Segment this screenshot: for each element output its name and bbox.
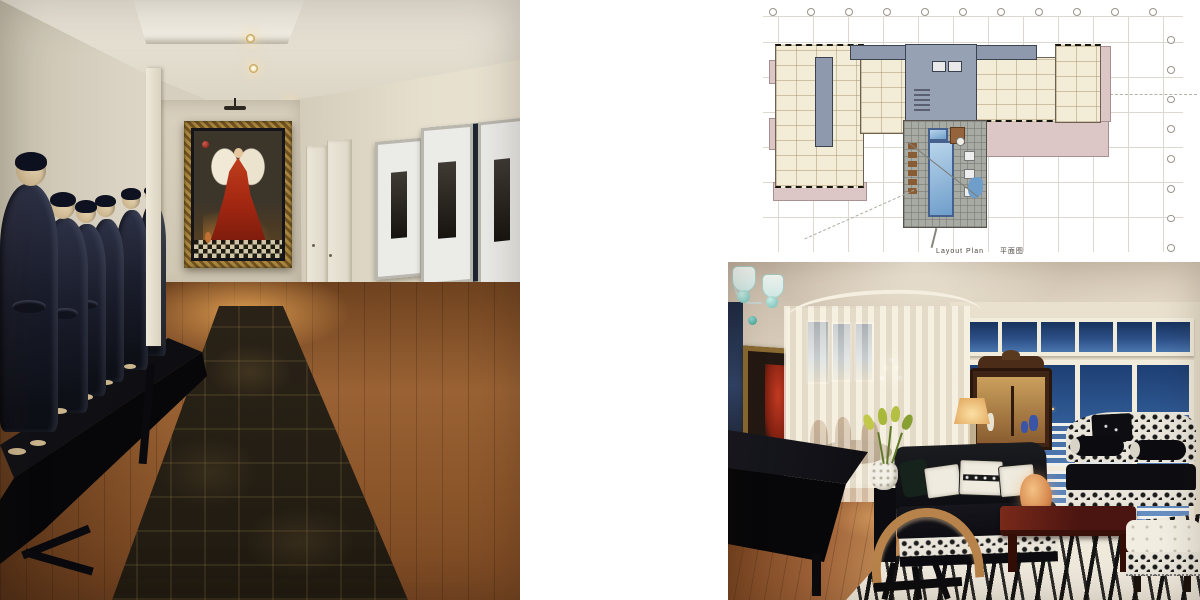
statue-head (51, 194, 75, 219)
ottoman-damask-band (1126, 552, 1200, 576)
plan-east-rooms (975, 57, 1063, 122)
bolster-pillow (1132, 440, 1186, 460)
framed-print-1 (375, 138, 423, 280)
statue-hair (15, 152, 47, 171)
grid-bubble (845, 8, 853, 16)
door-knob (312, 244, 315, 247)
blue-vase (1029, 415, 1038, 431)
grid-bubble (883, 8, 891, 16)
checkered-floor (194, 240, 282, 258)
plan-stair (914, 87, 930, 111)
piano-leg (812, 554, 821, 596)
framed-print-3 (478, 117, 520, 292)
grid-bubble (997, 8, 1005, 16)
grid-bubble (807, 8, 815, 16)
plan-spa (928, 128, 948, 141)
plan-mid-rooms (860, 57, 909, 134)
door-casing (146, 68, 161, 346)
settee-damask-front (1066, 490, 1196, 506)
statue-feet (30, 440, 46, 446)
grid-bubbles-right (1167, 36, 1175, 252)
statue-hair (121, 188, 140, 200)
bolster-pillow (1072, 436, 1124, 456)
plan-table-round (956, 137, 965, 146)
grid-bubble (1167, 185, 1175, 193)
plan-pool (928, 141, 954, 217)
picture-light (224, 106, 246, 110)
statue-feet (8, 448, 26, 455)
glass-ball (766, 296, 778, 308)
plan-seat (964, 151, 975, 161)
glass-cup (762, 274, 784, 298)
glass-ball (737, 290, 750, 303)
plan-northeast-rooms (1055, 44, 1101, 123)
statue-hair (95, 195, 116, 207)
cabinet-mullion (1011, 386, 1014, 436)
recessed-downlight (249, 64, 258, 73)
framed-print-artwork (438, 162, 456, 240)
plan-elevator (948, 61, 962, 72)
statue-head (76, 202, 96, 223)
plan-courtyard (903, 120, 987, 228)
grid-bubbles-top (769, 8, 1169, 16)
grid-bubble (959, 8, 967, 16)
statue-head (16, 155, 46, 186)
grid-bubble (1035, 8, 1043, 16)
living-room-photo (728, 262, 1200, 600)
grid-bubble (1167, 244, 1175, 252)
grid-bubble (1167, 215, 1175, 223)
grid-bubble (1149, 8, 1157, 16)
bolster-cap (1130, 442, 1140, 458)
recessed-downlight (246, 34, 255, 43)
white-lattice-vase (870, 460, 898, 490)
plan-terrace-right (985, 119, 1109, 157)
framed-print-2 (421, 124, 473, 287)
grid-bubble (1167, 125, 1175, 133)
ottoman-cushion (1126, 520, 1200, 554)
transom-pane (1002, 322, 1036, 352)
blue-vase (1021, 421, 1028, 433)
grid-bubble (1167, 155, 1175, 163)
plan-core (905, 44, 977, 124)
grid-bubble (1073, 8, 1081, 16)
plan-lounge-chairs (908, 143, 917, 195)
door-knob (329, 254, 332, 257)
transom-windows (960, 318, 1194, 356)
table-leg (1008, 534, 1017, 572)
settee-seat (1066, 464, 1196, 492)
statue-hair (75, 200, 97, 213)
table-lamp (954, 398, 990, 424)
angel-painting (184, 121, 292, 268)
white-pillow (958, 459, 1003, 497)
white-pillow (923, 463, 963, 500)
grid-bubble (769, 8, 777, 16)
glass-cup (732, 266, 756, 292)
angel-painting-canvas (191, 128, 285, 261)
grid-bubble (1167, 96, 1175, 104)
ottoman-leg (1184, 576, 1191, 592)
plan-corridor-west (815, 57, 833, 147)
grid-bubble (1111, 8, 1119, 16)
transom-pane (1041, 322, 1075, 352)
red-orb (202, 141, 209, 148)
grid-bubble (921, 8, 929, 16)
cabinet-crown (1002, 350, 1020, 360)
hallway-gallery-photo (0, 0, 520, 600)
plan-caption-en: Layout Plan (936, 248, 984, 255)
alms-bowl (12, 300, 46, 313)
transom-pane (1117, 322, 1151, 352)
transom-pane (1156, 322, 1190, 352)
grid-bubble (1167, 36, 1175, 44)
glass-drop (748, 316, 757, 325)
statue-head (122, 190, 140, 209)
floor-plan-drawing: Layout Plan 平面图 (755, 0, 1200, 262)
small-figure (205, 232, 211, 243)
statue-head (96, 197, 115, 217)
tufted-ottoman (1126, 520, 1200, 600)
transom-pane (1079, 322, 1113, 352)
framed-print-artwork (391, 171, 408, 238)
ottoman-leg (1134, 576, 1141, 592)
plan-elevator (932, 61, 946, 72)
cabinet-glass (977, 377, 1045, 443)
bolster-cap (1070, 438, 1080, 454)
venetian-glass-chandelier (728, 262, 802, 346)
plan-reference-dashline (1105, 94, 1197, 95)
plan-caption-zh: 平面图 (1000, 248, 1024, 255)
grid-bubble (1167, 66, 1175, 74)
framed-print-artwork (494, 158, 511, 242)
statue-feet (124, 364, 136, 369)
pillow-damask-band (963, 474, 998, 482)
coffee-table (1000, 506, 1136, 536)
statue-hair (50, 192, 76, 208)
plan-caption: Layout Plan 平面图 (895, 246, 1065, 256)
